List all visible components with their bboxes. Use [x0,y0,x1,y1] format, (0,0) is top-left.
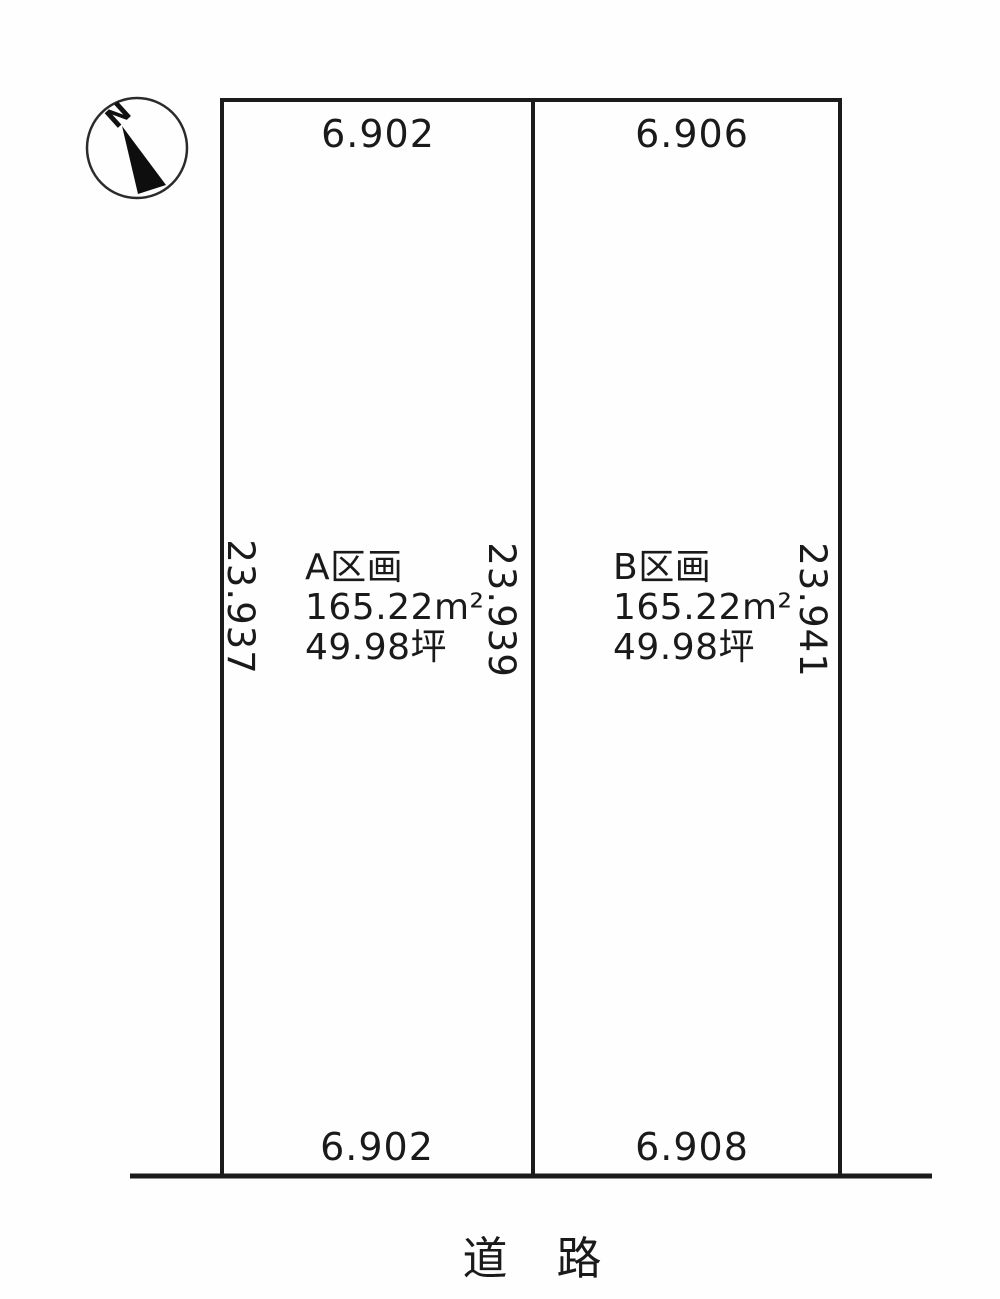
plot-a-label-block: A区画 165.22m² 49.98坪 [305,548,484,668]
plot-b-top-dimension: 6.906 [572,112,812,156]
plot-a-area-tsubo: 49.98坪 [305,628,484,668]
north-needle-icon [122,126,166,194]
plot-b-label-block: B区画 165.22m² 49.98坪 [613,548,792,668]
compass-north-label: N [100,96,138,134]
road-label: 道 路 [383,1222,683,1287]
plot-b-area-tsubo: 49.98坪 [613,628,792,668]
middle-depth-dimension: 23.939 [481,530,521,690]
plot-b-bottom-dimension: 6.908 [572,1125,812,1169]
plot-a-area-sqm: 165.22m² [305,588,484,628]
plot-a-top-dimension: 6.902 [258,112,498,156]
right-depth-dimension: 23.941 [792,530,832,690]
plot-a-bottom-dimension: 6.902 [257,1125,497,1169]
compass: N [87,96,187,198]
plot-b-area-sqm: 165.22m² [613,588,792,628]
plot-b-name: B区画 [613,548,792,588]
left-depth-dimension: 23.937 [220,527,260,687]
plot-a-name: A区画 [305,548,484,588]
plot-diagram: N 6.902 6.906 23.937 23.939 23.941 A区画 1… [0,0,1000,1299]
